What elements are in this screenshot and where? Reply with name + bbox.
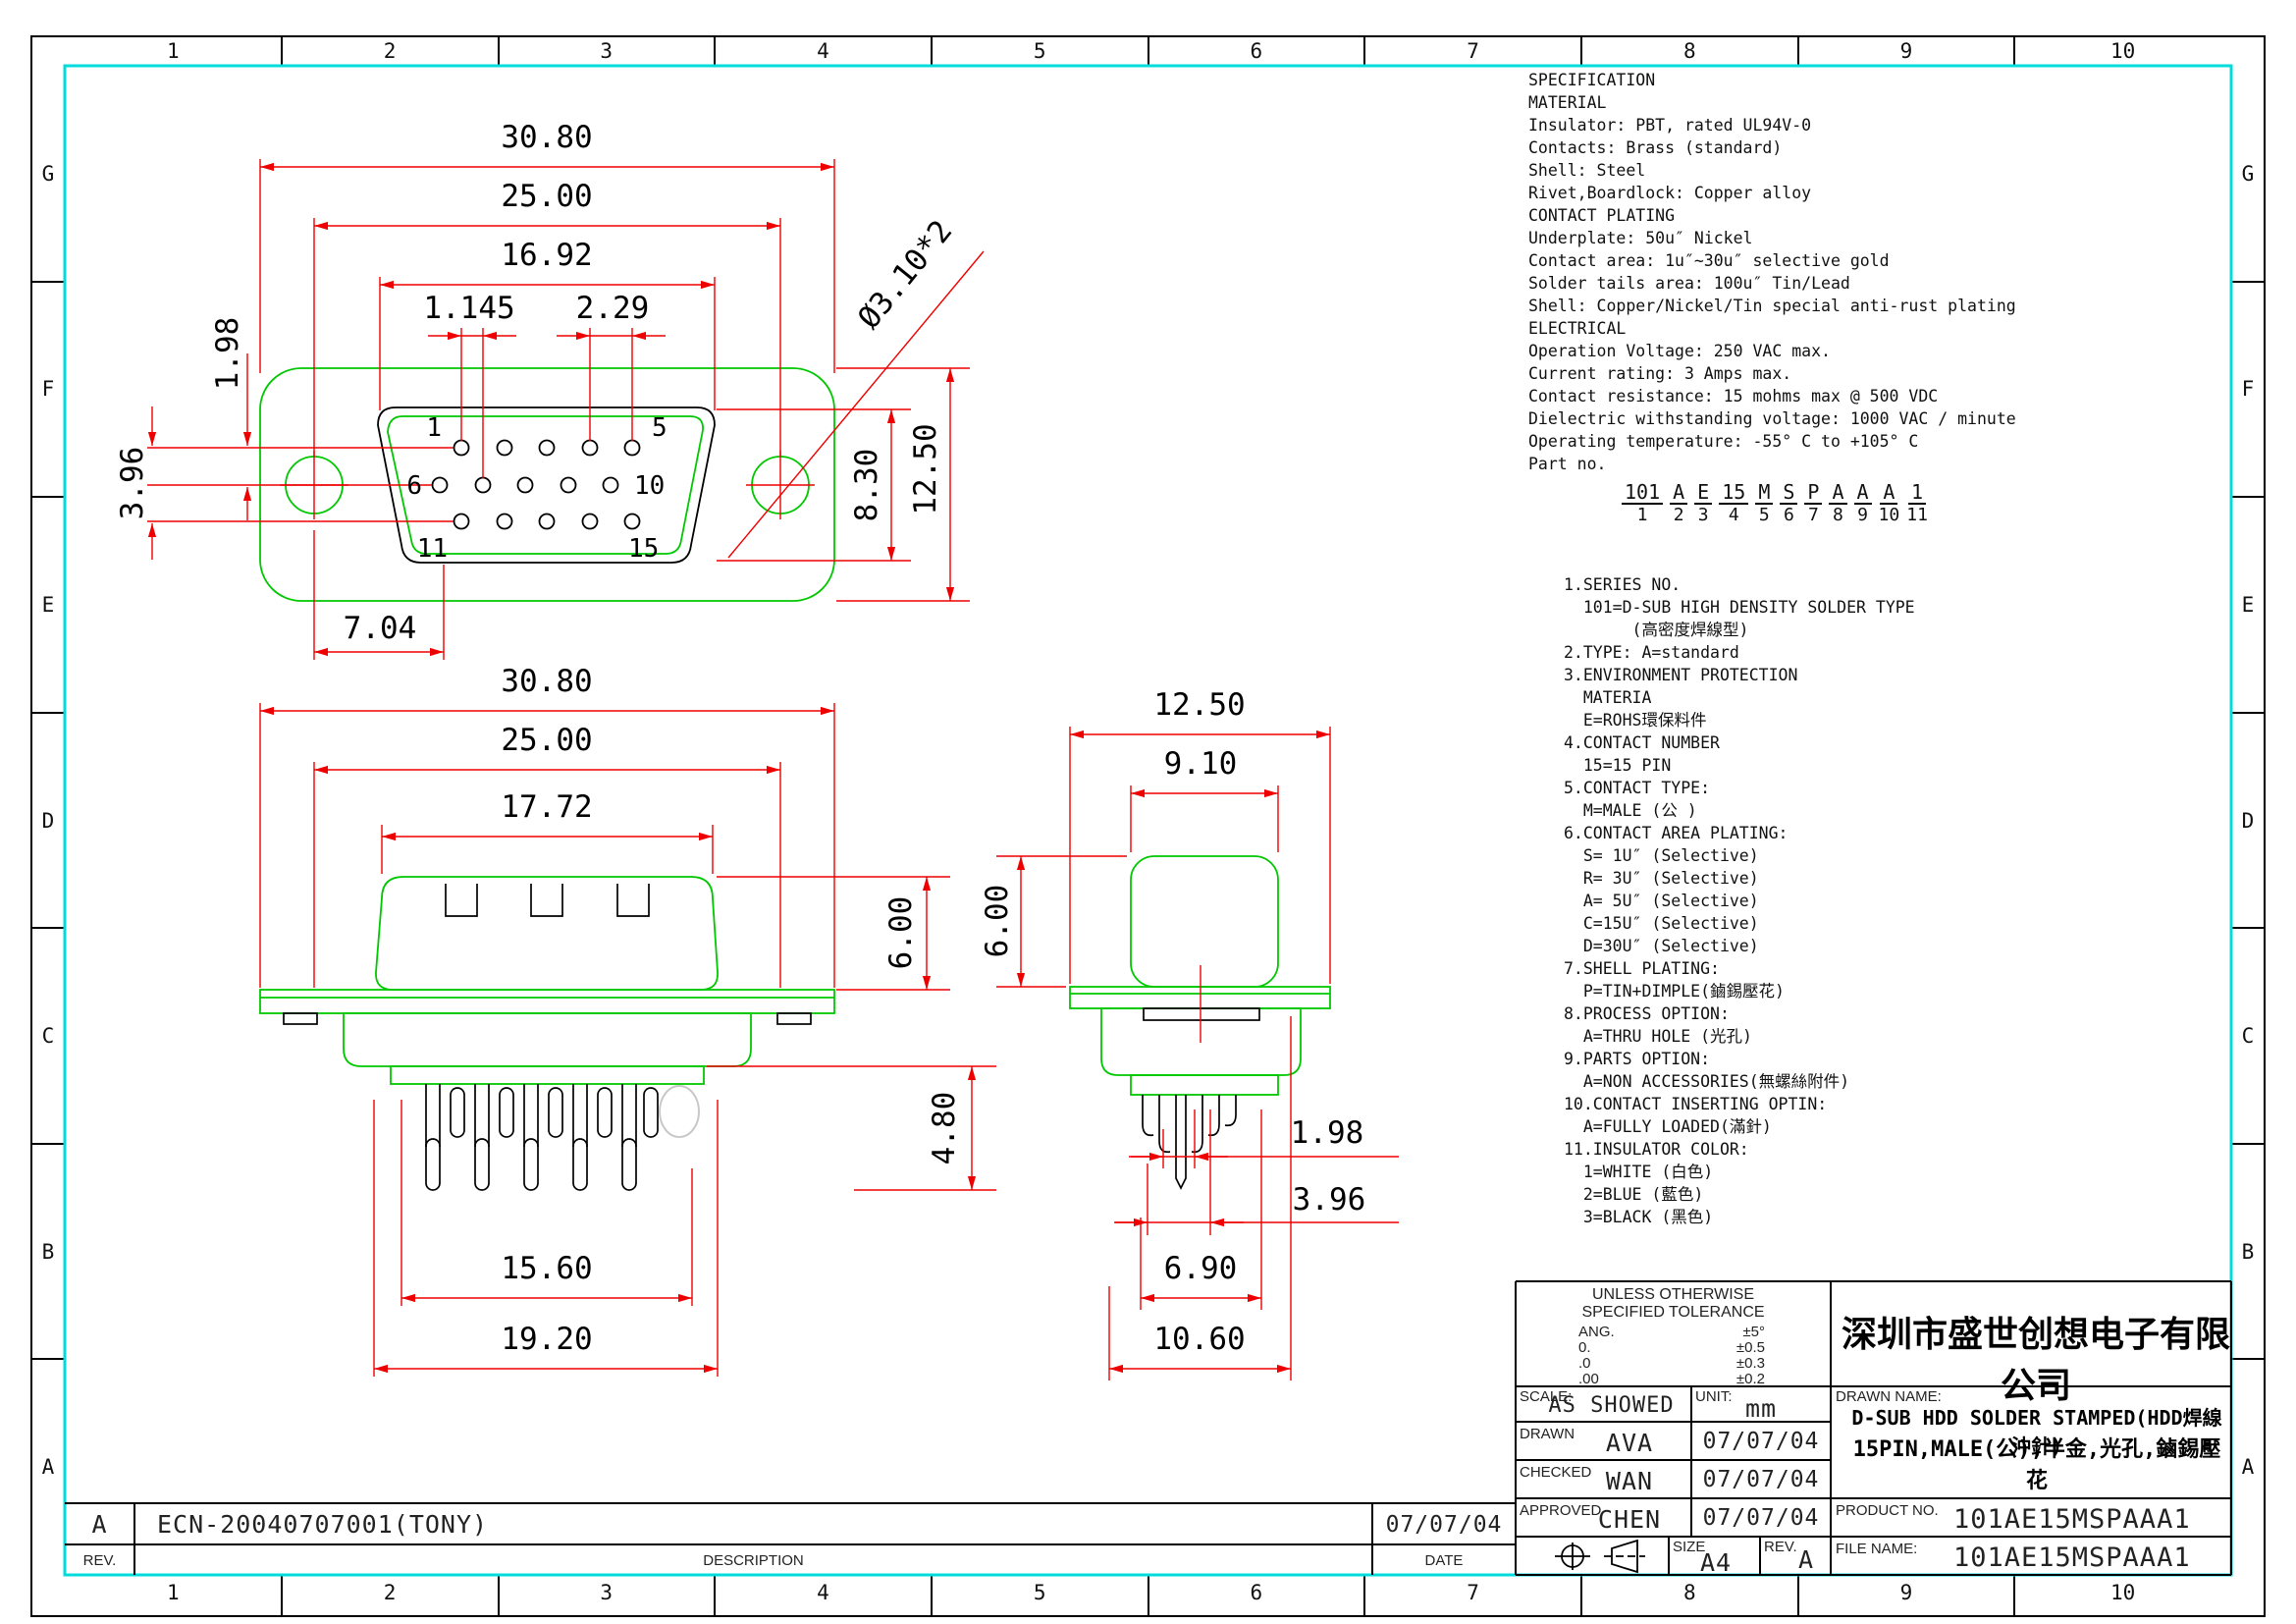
spec-line: Dielectric withstanding voltage: 1000 VA… (1528, 407, 2016, 430)
dim-rear-3080: 30.80 (501, 664, 592, 699)
ruler-right: GFEDCBA (2231, 66, 2265, 1575)
tolerance-row: .0 ±0.3 (1578, 1355, 1765, 1371)
front-dim-lines (147, 159, 984, 660)
ruler-row-letter: A (2231, 1359, 2265, 1575)
ruler-row-letter: E (31, 497, 65, 713)
ruler-col-number: 3 (498, 1578, 715, 1607)
revision-date-label: DATE (1372, 1552, 1516, 1569)
ruler-col-number: 2 (282, 36, 499, 66)
rear-body-outline (260, 877, 834, 1084)
drawn-value: AVA (1571, 1429, 1688, 1457)
dim-rear-1772: 17.72 (501, 789, 592, 825)
pin-label-1: 1 (426, 413, 442, 443)
part-number-code: M (1755, 481, 1773, 505)
part-number-column: 101 1 (1622, 481, 1663, 526)
note-line: E=ROHS環保料件 (1564, 709, 1915, 731)
part-number-column: 15 4 (1719, 481, 1748, 526)
part-number-position: 5 (1759, 505, 1770, 526)
part-number-position: 10 (1879, 505, 1900, 526)
dim-rear-1560: 15.60 (501, 1251, 592, 1286)
rear-dim-labels: 30.80 25.00 17.72 6.00 4.80 15.60 19.20 (501, 664, 962, 1357)
dim-side-1250: 12.50 (1153, 687, 1245, 723)
ruler-row-letter: C (31, 928, 65, 1144)
ruler-row-letter: E (2231, 497, 2265, 713)
dim-front-396: 3.96 (115, 447, 150, 520)
spec-line: Contacts: Brass (standard) (1528, 136, 2016, 159)
spec-line: Rivet,Boardlock: Copper alloy (1528, 182, 2016, 204)
front-dim-labels: 30.80 25.00 16.92 1.145 2.29 7.04 1.98 3… (115, 120, 959, 646)
dim-side-600: 6.00 (980, 885, 1015, 958)
size-value: A4 (1700, 1548, 1732, 1577)
tolerance-head2: SPECIFIED TOLERANCE (1516, 1304, 1831, 1322)
ruler-row-letter: G (31, 66, 65, 282)
dim-front-198: 1.98 (210, 317, 245, 391)
spec-line: ELECTRICAL (1528, 317, 2016, 340)
ruler-row-letter: B (2231, 1144, 2265, 1360)
tolerance-value: ±0.5 (1736, 1339, 1765, 1355)
spec-line: MATERIAL (1528, 91, 2016, 114)
note-line: S= 1U″ (Selective) (1564, 844, 1915, 867)
tolerance-value: ±0.2 (1736, 1371, 1765, 1386)
dim-side-198: 1.98 (1291, 1115, 1364, 1151)
dim-rear-480: 4.80 (927, 1092, 962, 1165)
note-line: 8.PROCESS OPTION: (1564, 1002, 1915, 1025)
ruler-col-number: 6 (1148, 1578, 1365, 1607)
revision-date: 07/07/04 (1372, 1512, 1516, 1538)
pin-label-10: 10 (634, 471, 665, 501)
ruler-top: 12345678910 (65, 36, 2231, 66)
ruler-col-number: 5 (932, 1578, 1148, 1607)
tolerance-head1: UNLESS OTHERWISE (1516, 1286, 1831, 1304)
dim-front-704: 7.04 (344, 611, 417, 646)
note-line: 3.ENVIRONMENT PROTECTION (1564, 664, 1915, 686)
ruler-row-letter: D (2231, 713, 2265, 929)
ruler-bottom: 12345678910 (65, 1578, 2231, 1607)
note-line: R= 3U″ (Selective) (1564, 867, 1915, 890)
ruler-row-letter: F (2231, 282, 2265, 498)
spec-line: Shell: Copper/Nickel/Tin special anti-ru… (1528, 295, 2016, 317)
dim-front-2500: 25.00 (501, 179, 592, 214)
part-number-code: A (1854, 481, 1872, 505)
note-line: (高密度焊線型) (1564, 619, 1915, 641)
note-line: 5.CONTACT TYPE: (1564, 777, 1915, 799)
view-front-face: 30.80 25.00 16.92 1.145 2.29 7.04 1.98 3… (115, 120, 984, 660)
revision-description-label: DESCRIPTION (134, 1552, 1372, 1569)
part-number-code: 101 (1622, 481, 1663, 505)
note-line: D=30U″ (Selective) (1564, 935, 1915, 957)
dim-side-910: 9.10 (1164, 746, 1238, 782)
part-number-code: A (1670, 481, 1687, 505)
part-number-column: A 8 (1829, 481, 1846, 526)
spec-line: Operation Voltage: 250 VAC max. (1528, 340, 2016, 362)
product-no-label: PRODUCT NO. (1836, 1502, 1939, 1519)
note-line: M=MALE (公 ) (1564, 799, 1915, 822)
ruler-col-number: 1 (65, 36, 282, 66)
spec-line: Contact area: 1u″~30u″ selective gold (1528, 249, 2016, 272)
pin-label-5: 5 (652, 413, 667, 443)
projection-symbol-icon (1555, 1541, 1645, 1572)
rev-value: A (1798, 1545, 1814, 1574)
view-side: 12.50 9.10 6.00 1.98 3.96 6.90 10.60 (980, 687, 1399, 1380)
note-line: A= 5U″ (Selective) (1564, 890, 1915, 912)
revision-description: ECN-20040707001(TONY) (157, 1510, 488, 1539)
pin-label-6: 6 (406, 471, 422, 501)
dim-side-1060: 10.60 (1153, 1322, 1245, 1357)
revision-rev-label: REV. (65, 1552, 134, 1569)
spec-line: Shell: Steel (1528, 159, 2016, 182)
view-rear: 30.80 25.00 17.72 6.00 4.80 15.60 19.20 (260, 664, 996, 1377)
dim-front-3080: 30.80 (501, 120, 592, 155)
tolerance-row: 0. ±0.5 (1578, 1339, 1765, 1355)
ruler-col-number: 4 (715, 1578, 932, 1607)
part-number-code: A (1829, 481, 1846, 505)
ruler-col-number: 10 (2014, 1578, 2231, 1607)
ruler-col-number: 8 (1581, 36, 1798, 66)
ruler-row-letter: G (2231, 66, 2265, 282)
part-number-column: P 7 (1804, 481, 1822, 526)
ruler-col-number: 10 (2014, 36, 2231, 66)
dim-rear-600: 6.00 (883, 896, 919, 970)
note-line: 11.INSULATOR COLOR: (1564, 1138, 1915, 1161)
spec-line: Insulator: PBT, rated UL94V-0 (1528, 114, 2016, 136)
unit-label: UNIT: (1695, 1388, 1733, 1405)
part-number-code: P (1804, 481, 1822, 505)
part-number-column: A 10 (1879, 481, 1900, 526)
part-number-code: A (1880, 481, 1897, 505)
note-line: 2=BLUE (藍色) (1564, 1183, 1915, 1206)
scale-value: AS SHOWED (1531, 1393, 1691, 1418)
rear-ghost-circle (660, 1086, 699, 1137)
dim-side-396: 3.96 (1293, 1182, 1366, 1218)
dim-rear-2500: 25.00 (501, 723, 592, 758)
side-dim-labels: 12.50 9.10 6.00 1.98 3.96 6.90 10.60 (980, 687, 1365, 1357)
unit-value: mm (1745, 1394, 1777, 1423)
note-line: 3=BLACK (黑色) (1564, 1206, 1915, 1228)
part-number-column: 1 11 (1906, 481, 1928, 526)
part-number-position: 2 (1674, 505, 1684, 526)
note-line: P=TIN+DIMPLE(鏀錫壓花) (1564, 980, 1915, 1002)
drawn-date: 07/07/04 (1691, 1429, 1831, 1454)
pin-label-11: 11 (417, 534, 448, 564)
note-line: A=THRU HOLE (光孔) (1564, 1025, 1915, 1048)
tolerance-precision: .0 (1578, 1355, 1591, 1371)
note-line: A=FULLY LOADED(滿針) (1564, 1115, 1915, 1138)
dim-front-830: 8.30 (849, 449, 884, 522)
ruler-row-letter: D (31, 713, 65, 929)
drawn-name-line2: 15PIN,MALE(公),半金,光孔,鏀錫壓花 (1845, 1432, 2228, 1494)
note-line: 7.SHELL PLATING: (1564, 957, 1915, 980)
file-name-label: FILE NAME: (1836, 1541, 1917, 1557)
note-line: C=15U″ (Selective) (1564, 912, 1915, 935)
rear-dim-lines (260, 703, 996, 1377)
rev-label: REV. (1764, 1539, 1797, 1555)
part-number-position: 7 (1808, 505, 1819, 526)
dim-front-1250: 12.50 (908, 423, 943, 514)
tolerance-precision: .00 (1578, 1371, 1599, 1386)
spec-line: CONTACT PLATING (1528, 204, 2016, 227)
tolerance-value: ±0.3 (1736, 1355, 1765, 1371)
part-number-position: 11 (1906, 505, 1928, 526)
note-line: 4.CONTACT NUMBER (1564, 731, 1915, 754)
approved-value: CHEN (1571, 1505, 1688, 1534)
part-number-column: A 2 (1670, 481, 1687, 526)
note-line: 10.CONTACT INSERTING OPTIN: (1564, 1093, 1915, 1115)
ruler-col-number: 7 (1364, 1578, 1581, 1607)
dim-front-hole-dia: Ø3.10*2 (851, 214, 959, 336)
part-number-position: 4 (1729, 505, 1739, 526)
part-number-notes: 1.SERIES NO. 101=D-SUB HIGH DENSITY SOLD… (1564, 573, 1915, 1228)
drawing-sheet: 30.80 25.00 16.92 1.145 2.29 7.04 1.98 3… (0, 0, 2296, 1624)
note-line: 1=WHITE (白色) (1564, 1161, 1915, 1183)
spec-line: Contact resistance: 15 mohms max @ 500 V… (1528, 385, 2016, 407)
dim-front-1145: 1.145 (423, 291, 514, 326)
ruler-col-number: 9 (1798, 1578, 2015, 1607)
spec-line: Part no. (1528, 453, 2016, 475)
part-number-position: 6 (1784, 505, 1794, 526)
checked-date: 07/07/04 (1691, 1467, 1831, 1492)
ruler-col-number: 9 (1798, 36, 2015, 66)
part-number-code: 15 (1719, 481, 1748, 505)
part-number-position: 1 (1637, 505, 1648, 526)
tolerance-table: ANG. ±5° 0. ±0.5 .0 ±0.3 .00 ±0.2 (1578, 1324, 1765, 1386)
ruler-col-number: 2 (282, 1578, 499, 1607)
note-line: 15=15 PIN (1564, 754, 1915, 777)
spec-line: SPECIFICATION (1528, 69, 2016, 91)
ruler-col-number: 8 (1581, 1578, 1798, 1607)
file-name-value: 101AE15MSPAAA1 (1953, 1543, 2191, 1573)
part-number-code: S (1780, 481, 1797, 505)
part-number-code: 1 (1908, 481, 1926, 505)
ruler-col-number: 3 (498, 36, 715, 66)
revision-letter: A (65, 1510, 134, 1539)
note-line: 9.PARTS OPTION: (1564, 1048, 1915, 1070)
tolerance-value: ±5° (1742, 1324, 1765, 1339)
part-number-breakdown: 101 1 A 2 E 3 15 4 M 5 S (1622, 481, 1928, 526)
ruler-row-letter: B (31, 1144, 65, 1360)
ruler-col-number: 7 (1364, 36, 1581, 66)
spec-line: Operating temperature: -55° C to +105° C (1528, 430, 2016, 453)
spec-line: Underplate: 50u″ Nickel (1528, 227, 2016, 249)
note-line: 101=D-SUB HIGH DENSITY SOLDER TYPE (1564, 596, 1915, 619)
note-line: MATERIA (1564, 686, 1915, 709)
ruler-col-number: 4 (715, 36, 932, 66)
checked-value: WAN (1571, 1467, 1688, 1495)
ruler-col-number: 6 (1148, 36, 1365, 66)
approved-date: 07/07/04 (1691, 1505, 1831, 1531)
rear-black-details (284, 884, 811, 1190)
dim-front-1692: 16.92 (501, 238, 592, 273)
pin-label-15: 15 (628, 534, 659, 564)
ruler-col-number: 1 (65, 1578, 282, 1607)
ruler-row-letter: C (2231, 928, 2265, 1144)
ruler-col-number: 5 (932, 36, 1148, 66)
part-number-position: 8 (1833, 505, 1843, 526)
dim-rear-1920: 19.20 (501, 1322, 592, 1357)
note-line: 1.SERIES NO. (1564, 573, 1915, 596)
ruler-row-letter: A (31, 1359, 65, 1575)
note-line: A=NON ACCESSORIES(無螺絲附件) (1564, 1070, 1915, 1093)
dim-side-690: 6.90 (1164, 1251, 1238, 1286)
note-line: 2.TYPE: A=standard (1564, 641, 1915, 664)
ruler-left: GFEDCBA (31, 66, 65, 1575)
specification-block: SPECIFICATIONMATERIALInsulator: PBT, rat… (1528, 69, 2016, 475)
tolerance-precision: 0. (1578, 1339, 1591, 1355)
spec-line: Solder tails area: 100u″ Tin/Lead (1528, 272, 2016, 295)
part-number-position: 9 (1857, 505, 1868, 526)
part-number-column: S 6 (1780, 481, 1797, 526)
dim-front-229: 2.29 (576, 291, 650, 326)
part-number-code: E (1694, 481, 1712, 505)
part-number-column: E 3 (1694, 481, 1712, 526)
tolerance-precision: ANG. (1578, 1324, 1615, 1339)
part-number-column: M 5 (1755, 481, 1773, 526)
part-number-position: 3 (1698, 505, 1709, 526)
ruler-row-letter: F (31, 282, 65, 498)
part-number-column: A 9 (1854, 481, 1872, 526)
spec-line: Current rating: 3 Amps max. (1528, 362, 2016, 385)
drawn-label: DRAWN (1520, 1426, 1575, 1442)
tolerance-row: ANG. ±5° (1578, 1324, 1765, 1339)
tolerance-row: .00 ±0.2 (1578, 1371, 1765, 1386)
product-no-value: 101AE15MSPAAA1 (1953, 1504, 2191, 1535)
note-line: 6.CONTACT AREA PLATING: (1564, 822, 1915, 844)
